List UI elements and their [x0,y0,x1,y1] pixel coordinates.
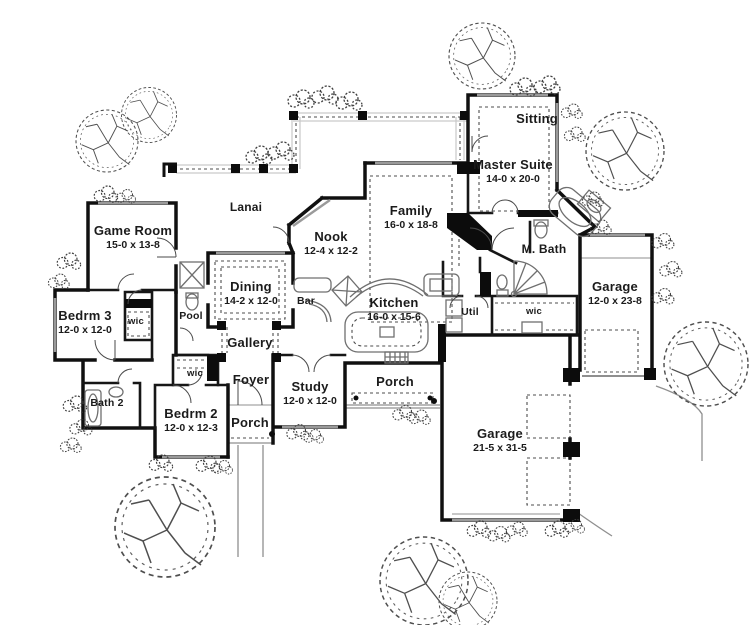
room-name: Bar [297,295,315,307]
room-label-porch-front: Porch [231,414,269,432]
room-name: wic [187,368,203,379]
room-label-garage-main: Garage21-5 x 31-5 [473,425,527,455]
room-name: Porch [376,374,414,389]
room-dims: 12-4 x 12-2 [304,246,358,258]
room-label-study: Study12-0 x 12-0 [283,378,337,408]
room-name: Study [291,379,328,394]
room-name: Garage [477,426,523,441]
room-dims: 12-0 x 12-0 [283,396,337,408]
room-label-dining: Dining14-2 x 12-0 [224,278,278,308]
room-label-bath-2: Bath 2 [90,393,123,411]
room-name: Master Suite [473,157,553,172]
room-label-master-suite: Master Suite14-0 x 20-0 [473,156,553,186]
room-label-porch-rear: Porch [376,373,414,391]
room-name: Nook [314,229,347,244]
room-dims: 12-0 x 12-0 [58,325,112,337]
room-dims: 12-0 x 23-8 [588,296,642,308]
room-name: Lanai [230,200,262,214]
room-label-kitchen: Kitchen16-0 x 15-6 [367,294,421,324]
room-dims: 14-0 x 20-0 [473,174,553,186]
room-name: Kitchen [369,295,418,310]
room-name: Pool [179,310,203,322]
room-label-gallery: Gallery [227,334,273,352]
floorplan-page: Lanai Game Room15-0 x 13-8 Nook12-4 x 12… [0,0,750,625]
room-name: Util [461,306,479,318]
room-label-util: Util [461,302,479,320]
room-name: Garage [592,279,638,294]
room-name: Family [390,203,432,218]
room-name: Game Room [94,223,172,238]
room-label-bar: Bar [297,291,315,309]
room-label-game-room: Game Room15-0 x 13-8 [94,222,172,252]
room-name: Bath 2 [90,397,123,409]
room-name: Foyer [233,372,269,387]
room-name: Sitting [516,111,558,126]
room-name: Dining [230,279,272,294]
room-label-wic-bedrm3: wic [128,311,144,329]
room-dims: 15-0 x 13-8 [94,240,172,252]
room-name: wic [128,316,144,327]
room-label-wic-bedrm2: wic [187,363,203,381]
room-dims: 16-0 x 18-8 [384,220,438,232]
room-label-bedrm-2: Bedrm 212-0 x 12-3 [164,405,218,435]
room-dims: 14-2 x 12-0 [224,296,278,308]
room-name: M. Bath [522,242,567,256]
room-dims: 16-0 x 15-6 [367,312,421,324]
room-name: wic [526,306,542,317]
room-label-garage-side: Garage12-0 x 23-8 [588,278,642,308]
door-arcs [95,136,518,405]
room-dims: 12-0 x 12-3 [164,423,218,435]
room-label-m-bath: M. Bath [522,240,567,258]
room-name: Gallery [227,335,273,350]
room-name: Bedrm 3 [58,308,111,323]
room-label-nook: Nook12-4 x 12-2 [304,228,358,258]
room-name: Bedrm 2 [164,406,217,421]
room-label-pool: Pool [179,306,203,324]
room-label-wic-master: wic [526,301,542,319]
room-label-foyer: Foyer [233,371,269,389]
room-name: Porch [231,415,269,430]
room-label-family: Family16-0 x 18-8 [384,202,438,232]
room-label-sitting: Sitting [516,110,558,128]
room-label-lanai: Lanai [230,198,262,216]
room-label-bedrm-3: Bedrm 312-0 x 12-0 [58,307,112,337]
room-dims: 21-5 x 31-5 [473,443,527,455]
